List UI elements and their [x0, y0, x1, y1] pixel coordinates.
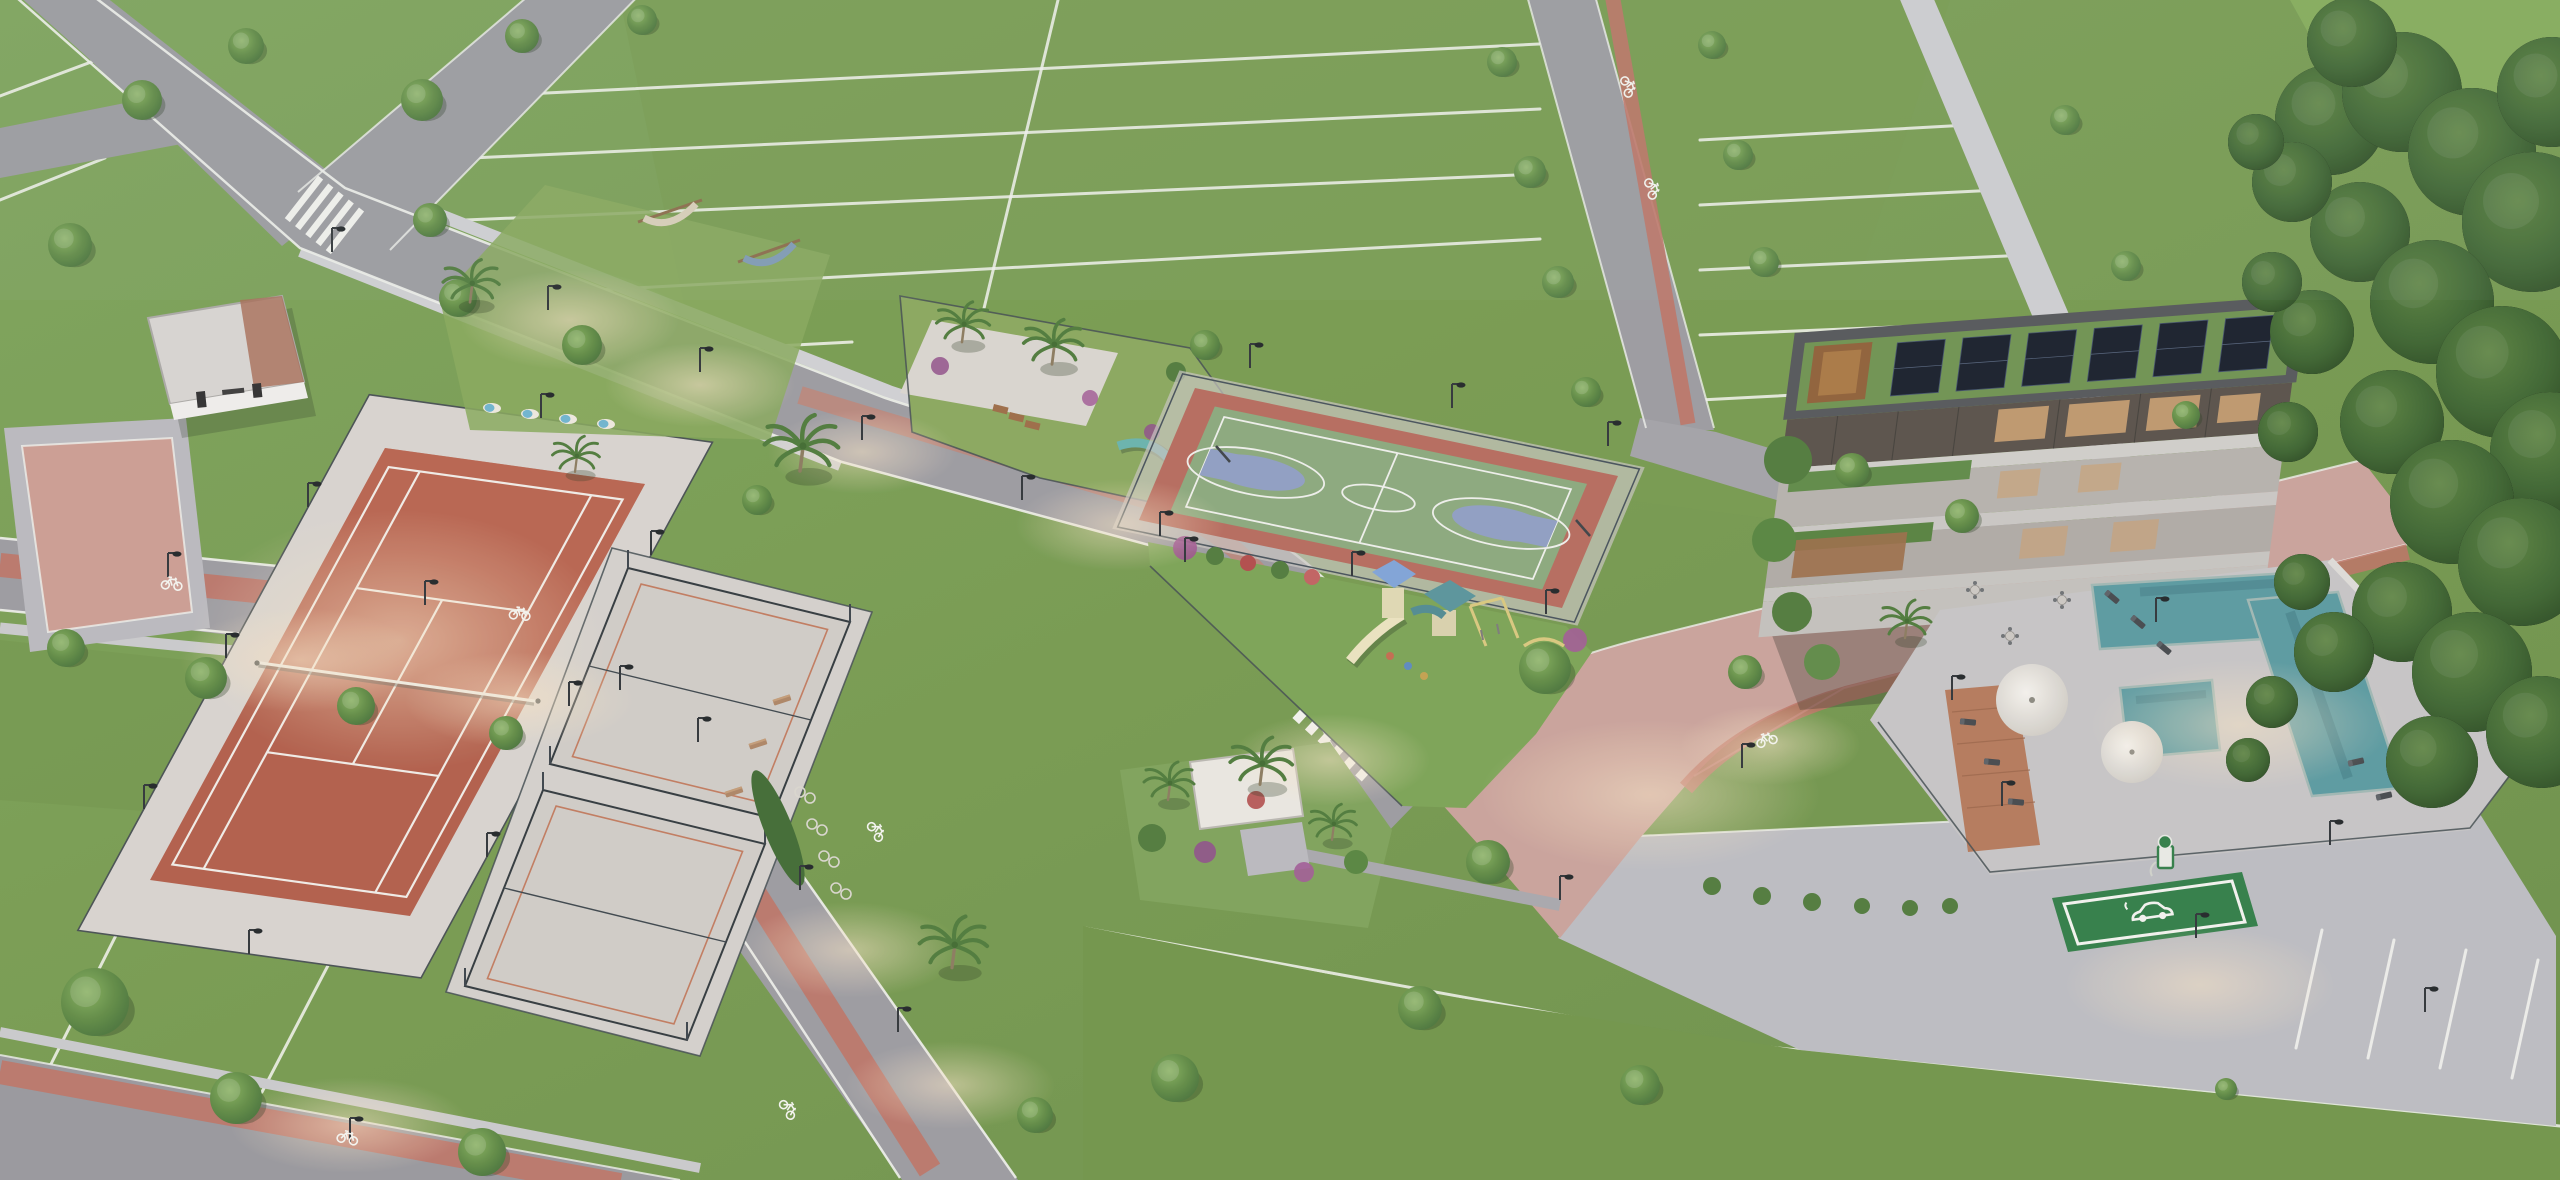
- community-aerial-render: [0, 0, 2560, 1180]
- dusk-lighting-overlay: [0, 0, 2560, 1180]
- aerial-render-stage: [0, 0, 2560, 1180]
